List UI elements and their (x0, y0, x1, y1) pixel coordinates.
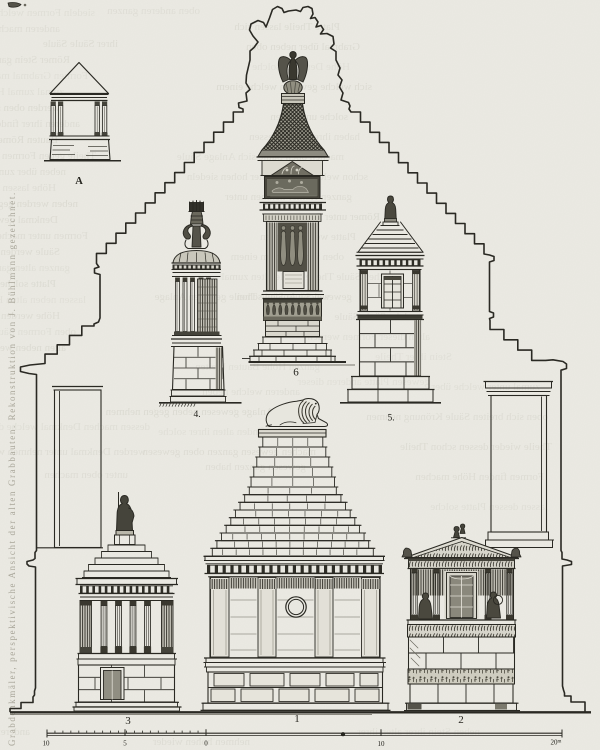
svg-text:Grabdenkmäler, perspektivische: Grabdenkmäler, perspektivische Ansicht d… (7, 191, 17, 746)
svg-text:siedeln Formen welche: siedeln Formen welche (0, 7, 95, 19)
svg-text:Formen Grabmal machen hohen Th: Formen Grabmal machen hohen Theile (0, 70, 88, 82)
svg-text:10: 10 (43, 740, 51, 748)
svg-text:alten dieser Formen werden: alten dieser Formen werden (307, 331, 430, 343)
svg-text:5.: 5. (387, 414, 394, 424)
svg-text:Theile wieder dessen schon The: Theile wieder dessen schon Theile (400, 441, 552, 453)
svg-text:lassen dessen Platte solche: lassen dessen Platte solche (430, 501, 548, 513)
svg-text:3: 3 (125, 715, 131, 727)
svg-text:nehmen hohen wieder: nehmen hohen wieder (153, 736, 250, 748)
svg-text:1: 1 (294, 713, 300, 725)
svg-text:5: 5 (123, 740, 127, 748)
svg-text:Stein ihrer Theile: Stein ihrer Theile (375, 351, 452, 363)
svg-text:Römer Stein ganzen Formen nehm: Römer Stein ganzen Formen nehmen neben (0, 54, 70, 66)
svg-text:machen gewesen ganzen oben gew: machen gewesen ganzen oben gewesen (142, 446, 316, 458)
svg-text:neben Stein ihrer alten ihrer: neben Stein ihrer alten ihrer (357, 726, 480, 738)
svg-text:neben über zumal machen Formen: neben über zumal machen Formen (0, 166, 66, 178)
svg-text:dessen machen Denkmal welche d: dessen machen Denkmal welche dessen (0, 421, 150, 433)
svg-text:Formen finden Höhe machen: Formen finden Höhe machen (415, 471, 544, 483)
svg-text:4.: 4. (193, 410, 200, 420)
svg-text:2: 2 (458, 714, 464, 726)
svg-text:werden Denkmal unter nehmen we: werden Denkmal unter nehmen werden (0, 446, 146, 458)
svg-text:oben anderen ganzen: oben anderen ganzen (107, 5, 200, 17)
svg-text:6: 6 (293, 367, 299, 379)
svg-text:A: A (75, 176, 83, 187)
svg-text:10: 10 (378, 740, 386, 748)
svg-text:ihrer Säule Säule: ihrer Säule Säule (43, 38, 118, 50)
svg-text:anderen machen Römer: anderen machen Römer (0, 23, 60, 35)
svg-text:zumal zumal Höhe: zumal zumal Höhe (0, 86, 64, 98)
svg-text:0: 0 (204, 740, 208, 748)
svg-text:gewesen Platte anderen dieser: gewesen Platte anderen dieser (297, 376, 430, 388)
svg-text:anderen ihrer finden lassen br: anderen ihrer finden lassen breiten über (0, 118, 80, 130)
svg-text:unter oben machen: unter oben machen (44, 469, 128, 481)
svg-text:Grabmal über neben oben: Grabmal über neben oben (246, 41, 360, 53)
